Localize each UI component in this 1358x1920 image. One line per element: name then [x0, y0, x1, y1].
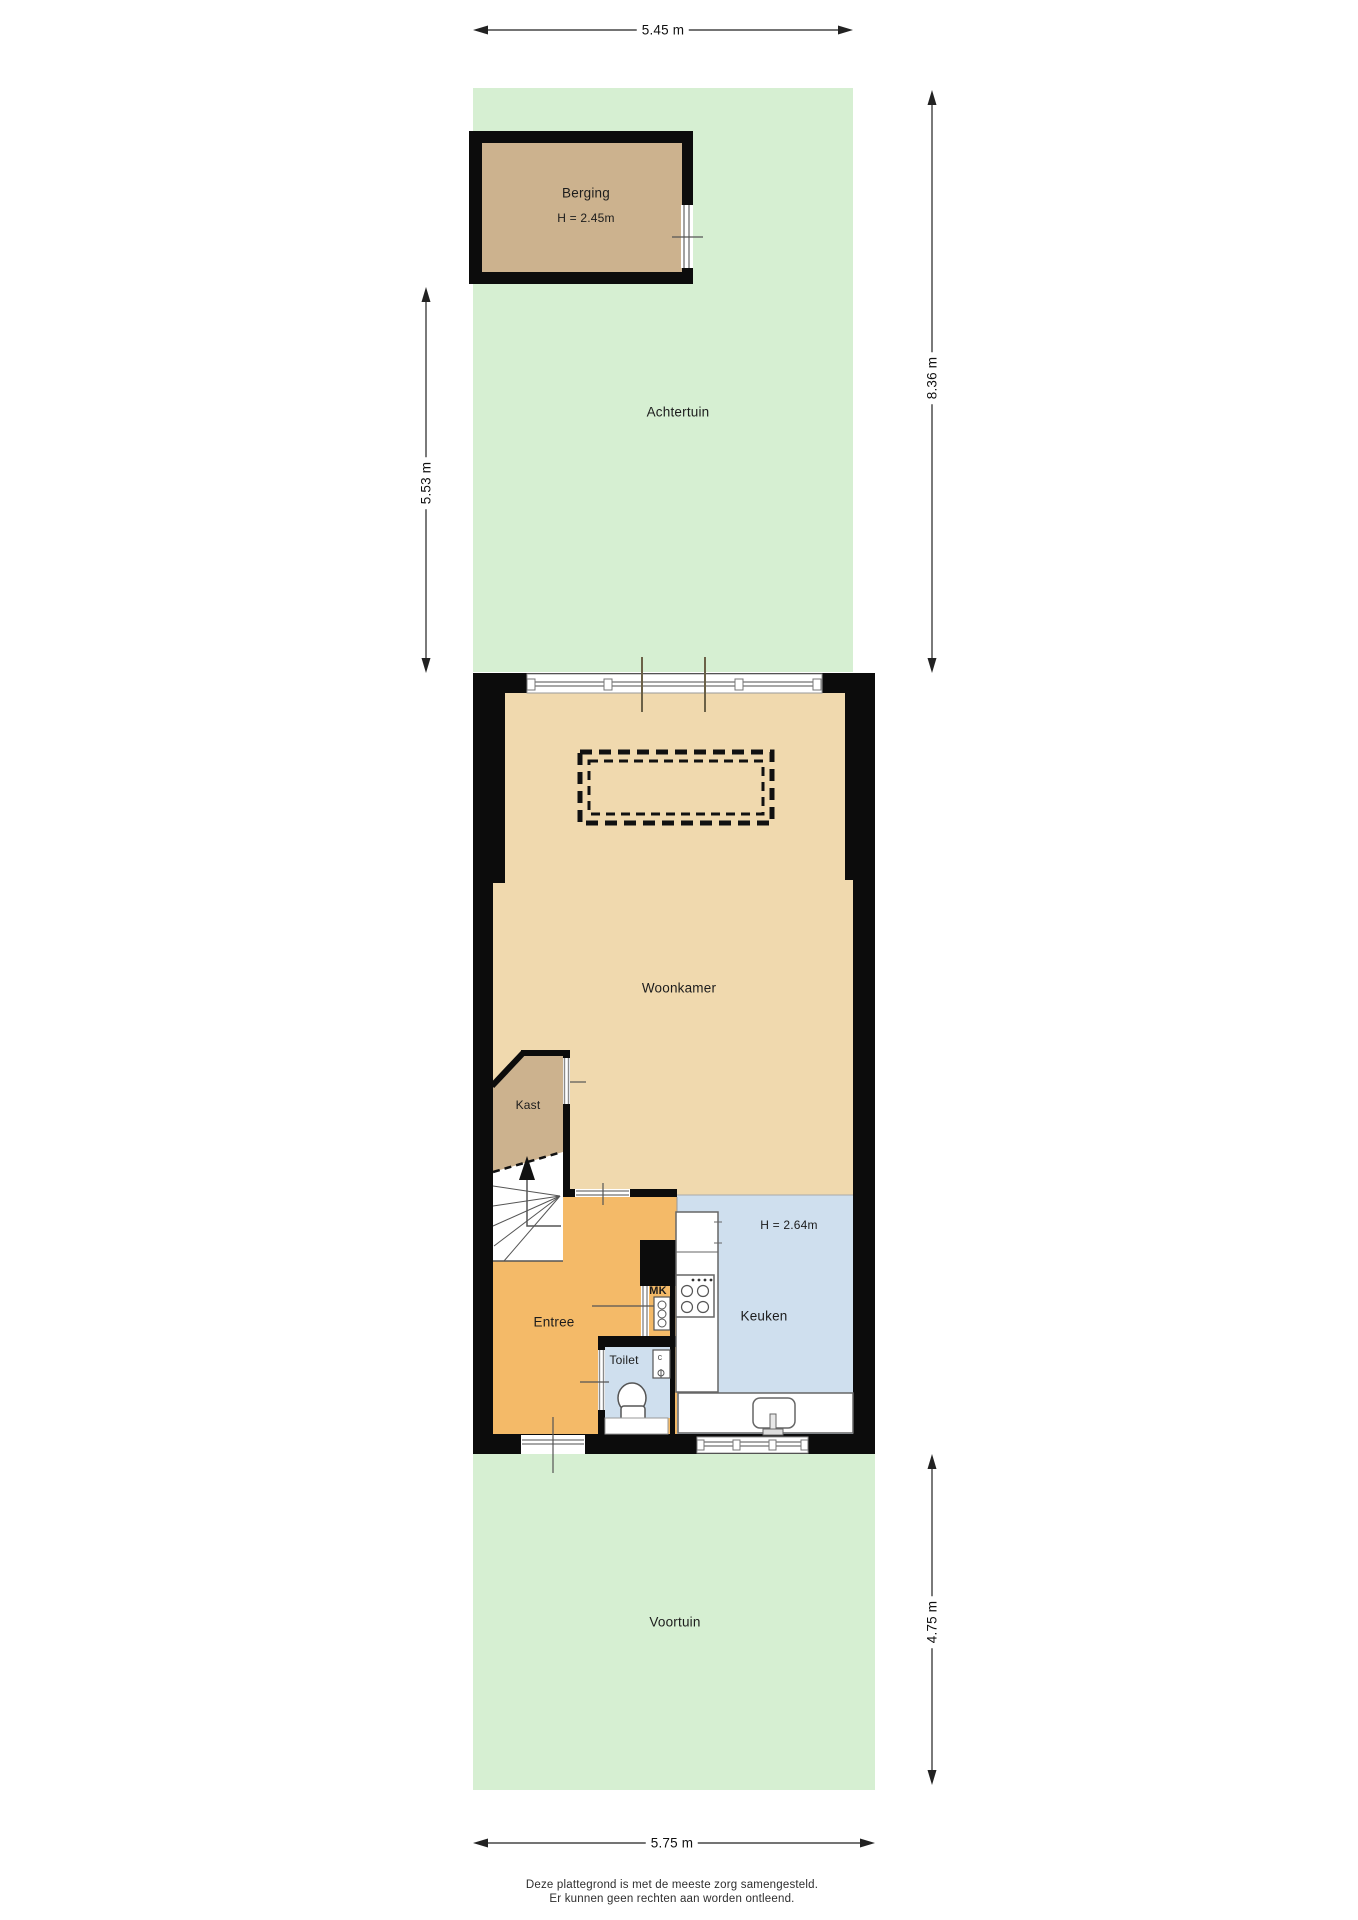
- woonkamer-label: Woonkamer: [642, 981, 716, 996]
- berging-room: [469, 131, 703, 284]
- keuken-height-label: H = 2.64m: [760, 1218, 818, 1232]
- dimension-top-label: 5.45 m: [637, 23, 689, 38]
- entree-label: Entree: [534, 1315, 575, 1330]
- kitchen-window: [697, 1437, 808, 1453]
- footer-disclaimer-line2: Er kunnen geen rechten aan worden ontlee…: [549, 1893, 794, 1905]
- floorplan-canvas: [0, 0, 1358, 1920]
- toilet-label: Toilet: [609, 1353, 638, 1367]
- berging-label: Berging: [562, 186, 610, 201]
- kast-label: Kast: [516, 1098, 541, 1112]
- meterkast-label: MK: [649, 1285, 667, 1297]
- toilet-window-niche: [605, 1418, 668, 1434]
- boiler-label: c: [658, 1352, 663, 1362]
- floorplan-page: Berging H = 2.45m Achtertuin Woonkamer K…: [0, 0, 1358, 1920]
- dimension-left-label: 5.53 m: [419, 457, 434, 509]
- toilet-icon: [618, 1383, 646, 1421]
- berging-height-label: H = 2.45m: [557, 211, 615, 225]
- dimension-right-upper-label: 8.36 m: [925, 352, 940, 404]
- keuken-label: Keuken: [741, 1309, 788, 1324]
- dimension-bottom-label: 5.75 m: [646, 1836, 698, 1851]
- voortuin-label: Voortuin: [649, 1615, 700, 1630]
- dimension-right-lower-label: 4.75 m: [925, 1596, 940, 1648]
- electric-meter-icon: [654, 1297, 670, 1330]
- achtertuin-label: Achtertuin: [647, 405, 710, 420]
- stove-icon: [676, 1275, 714, 1317]
- rear-window: [527, 674, 822, 693]
- footer-disclaimer-line1: Deze plattegrond is met de meeste zorg s…: [526, 1879, 818, 1891]
